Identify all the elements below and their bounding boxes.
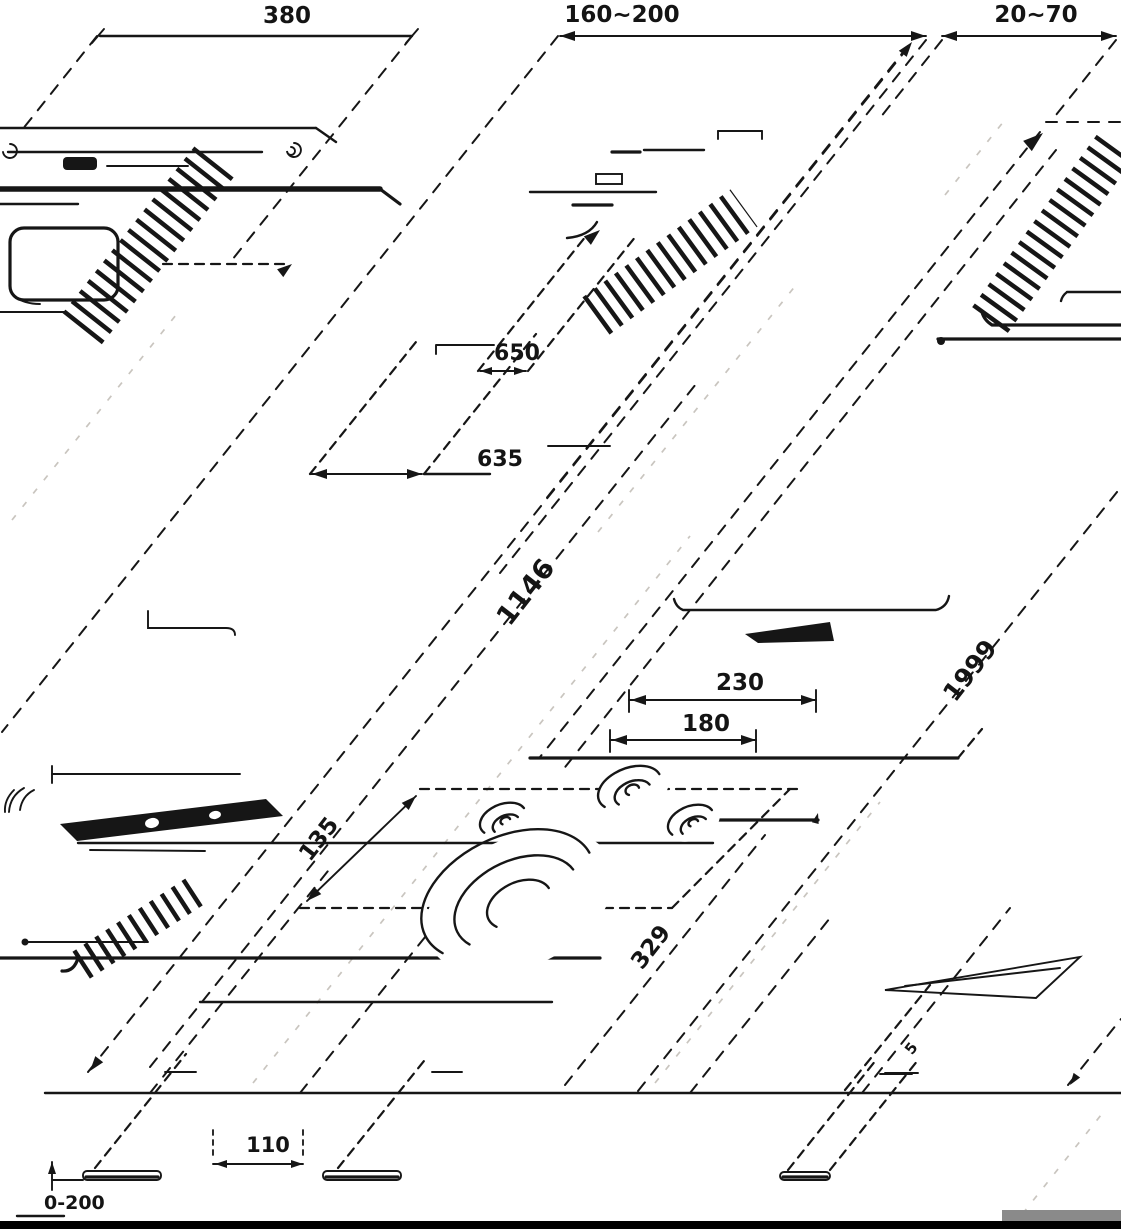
dim-1146-label: 1146 (491, 553, 562, 631)
airflow-arcs (5, 788, 34, 812)
dim-20-70-label: 20~70 (994, 2, 1077, 28)
dim-1999-label: 1999 (937, 634, 1003, 707)
dim-329-label: 329 (626, 920, 676, 974)
hood-front-hatch (80, 892, 194, 966)
dim-650-label: 650 (494, 341, 540, 366)
dim-380-label: 380 (263, 3, 311, 29)
hood-front-view (5, 611, 283, 966)
adjustable-feet (83, 1171, 830, 1180)
cabinet-shelf (674, 596, 949, 643)
bottom-gray-strip (1002, 1210, 1121, 1222)
range-hood (0, 128, 400, 334)
shelf-wedge (745, 622, 834, 643)
bottom-black-strip (0, 1221, 1121, 1229)
airflow-arrow (584, 226, 604, 245)
hood-switch (63, 157, 97, 170)
dim-180-label: 180 (682, 711, 730, 737)
dim-230-label: 230 (716, 670, 764, 696)
corrugated-hose (596, 208, 744, 316)
burner-small-right (660, 795, 725, 849)
dim-110-label: 110 (246, 1133, 290, 1157)
dim-135-label: 135 (294, 812, 344, 866)
gas-hob (0, 729, 982, 1003)
installation-diagram: 380 160~200 20~70 650 635 1146 230 180 1… (0, 0, 1121, 1229)
dim-160-200-label: 160~200 (564, 2, 679, 28)
handle-end-spiral (287, 143, 301, 157)
dim-635-label: 635 (477, 447, 523, 472)
floor-and-feet (0, 39, 1121, 1229)
dim-0-200-label: 0-200 (44, 1192, 105, 1214)
exhaust-hose-wall (937, 128, 1121, 345)
hood-underside (60, 799, 283, 841)
dim-5-label: 5 (901, 1039, 922, 1058)
diagram-canvas: 380 160~200 20~70 650 635 1146 230 180 1… (0, 0, 1121, 1229)
burner-medium (589, 753, 677, 826)
dim-650-leader (436, 345, 494, 354)
